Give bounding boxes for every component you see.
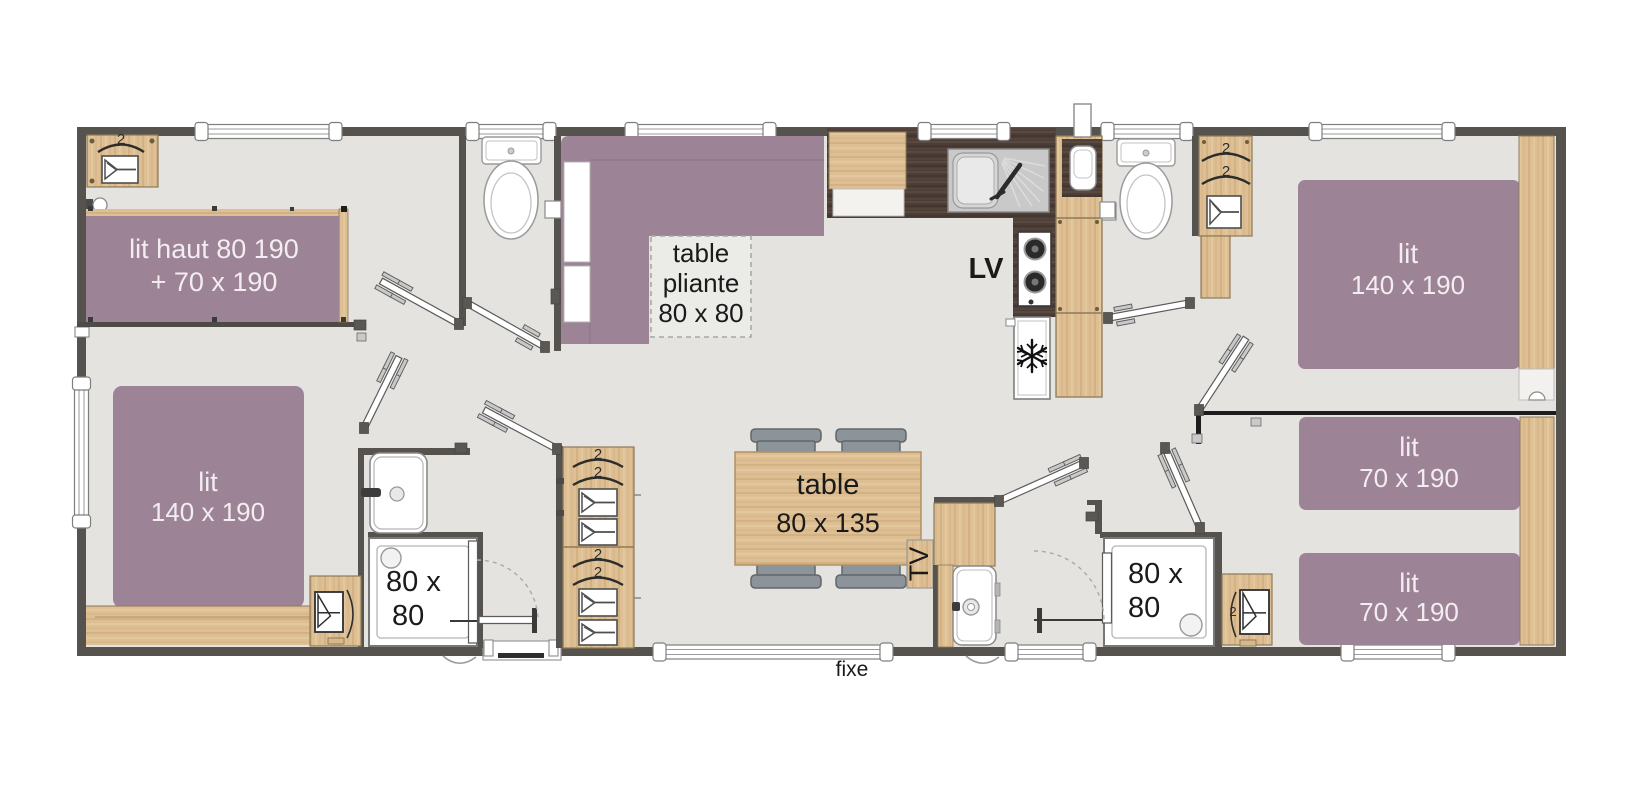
svg-text:2: 2 xyxy=(594,546,602,563)
svg-text:lit: lit xyxy=(1399,568,1419,598)
svg-text:140 x 190: 140 x 190 xyxy=(151,497,265,527)
svg-text:LV: LV xyxy=(969,253,1005,285)
svg-text:80 x 80: 80 x 80 xyxy=(658,298,743,328)
svg-text:2: 2 xyxy=(594,464,602,481)
svg-text:70 x 190: 70 x 190 xyxy=(1359,597,1459,627)
svg-text:lit: lit xyxy=(1398,238,1418,269)
svg-text:140 x 190: 140 x 190 xyxy=(1351,270,1465,300)
svg-text:2: 2 xyxy=(117,131,125,148)
svg-text:2: 2 xyxy=(1229,604,1236,619)
svg-text:80: 80 xyxy=(1128,592,1160,624)
svg-text:fixe: fixe xyxy=(836,658,869,681)
svg-text:table: table xyxy=(797,469,860,501)
svg-text:+ 70 x 190: + 70 x 190 xyxy=(151,267,278,297)
svg-text:lit haut 80 190: lit haut 80 190 xyxy=(129,234,299,264)
svg-text:2: 2 xyxy=(1222,163,1230,180)
svg-text:table: table xyxy=(673,238,729,268)
svg-text:lit: lit xyxy=(198,467,218,497)
svg-text:80 x 135: 80 x 135 xyxy=(776,508,880,538)
svg-text:2: 2 xyxy=(594,564,602,581)
svg-text:pliante: pliante xyxy=(663,268,740,298)
svg-text:2: 2 xyxy=(1222,140,1230,157)
svg-text:2: 2 xyxy=(594,446,602,463)
svg-text:80 x: 80 x xyxy=(386,566,441,598)
svg-text:lit: lit xyxy=(1399,432,1419,462)
svg-text:80 x: 80 x xyxy=(1128,558,1183,590)
svg-text:70 x 190: 70 x 190 xyxy=(1359,463,1459,493)
svg-text:TV: TV xyxy=(904,547,934,582)
svg-text:80: 80 xyxy=(392,600,424,632)
